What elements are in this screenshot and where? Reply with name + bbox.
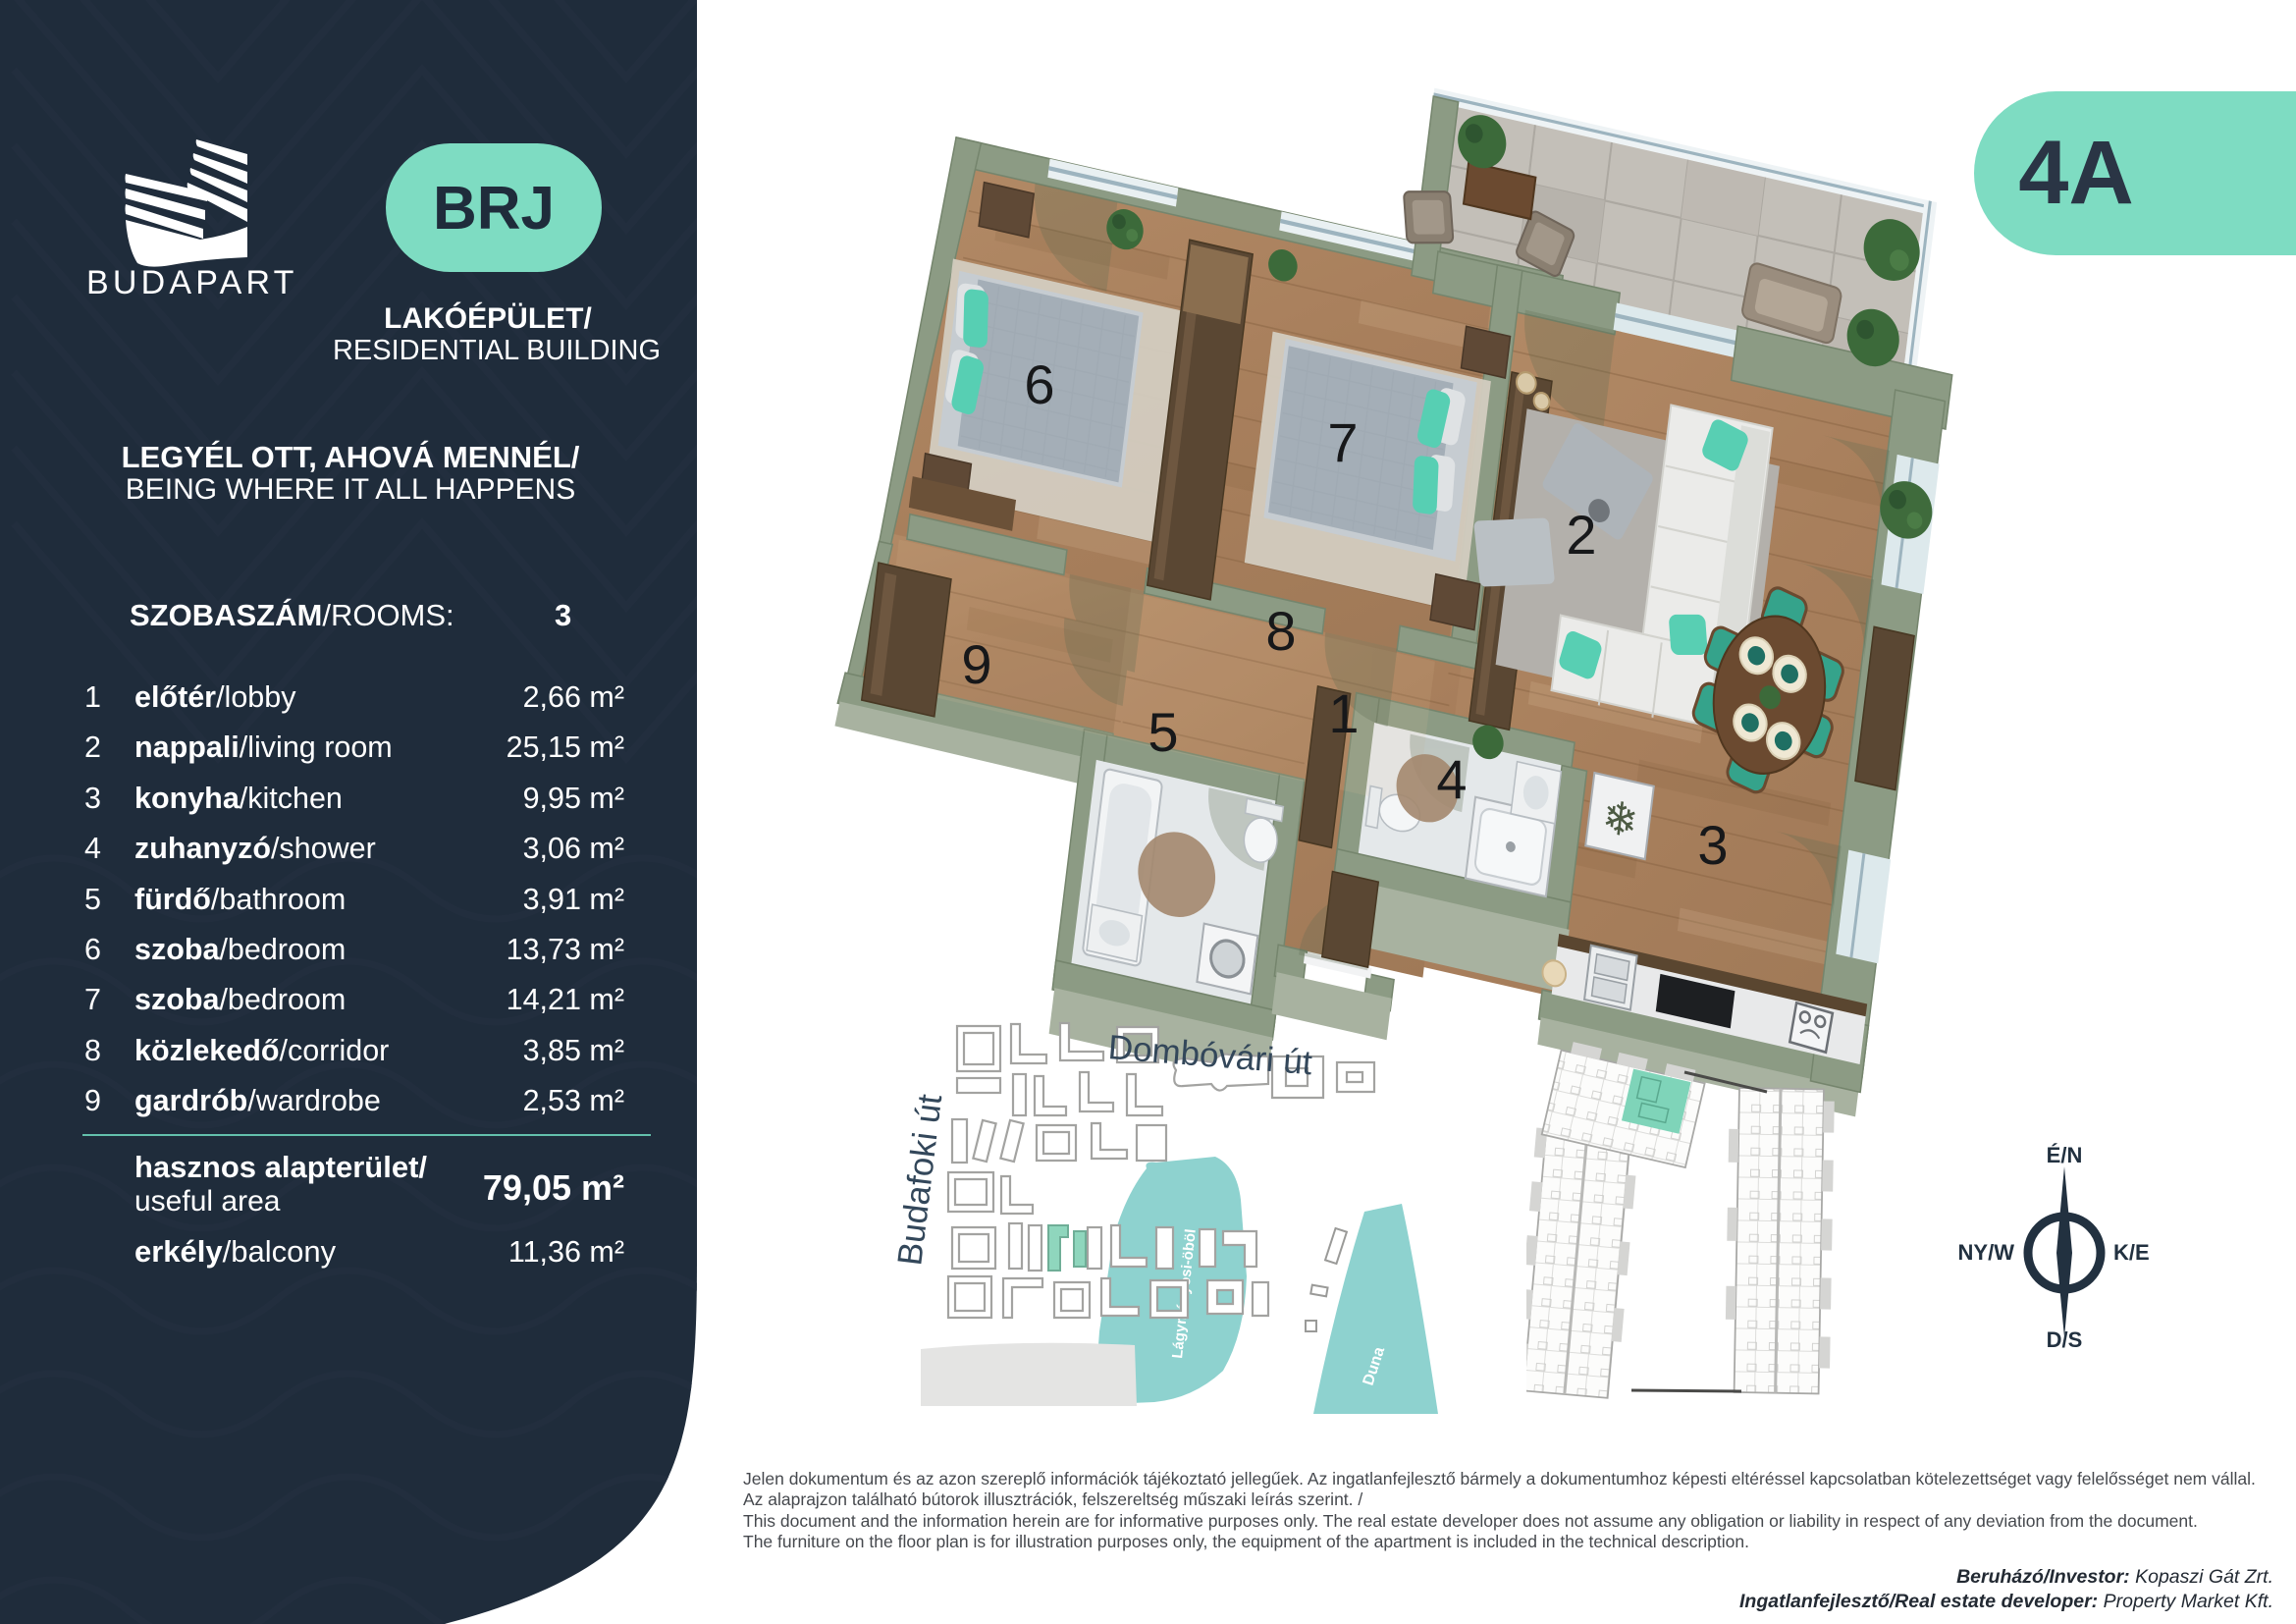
svg-text:NY/W: NY/W	[1958, 1240, 2015, 1265]
svg-text:8: 8	[84, 1034, 101, 1067]
svg-text:BUDAPART: BUDAPART	[86, 264, 298, 301]
svg-text:RESIDENTIAL BUILDING: RESIDENTIAL BUILDING	[333, 335, 661, 366]
svg-text:Budafoki út: Budafoki út	[890, 1092, 949, 1268]
svg-text:fürdő/bathroom: fürdő/bathroom	[134, 883, 346, 916]
svg-text:előtér/lobby: előtér/lobby	[134, 680, 296, 714]
svg-text:1: 1	[84, 680, 101, 714]
svg-text:5: 5	[1148, 701, 1178, 763]
svg-text:2: 2	[1566, 504, 1596, 566]
svg-text:szoba/bedroom: szoba/bedroom	[134, 983, 346, 1016]
svg-text:3: 3	[555, 598, 571, 632]
svg-text:3: 3	[1697, 814, 1728, 876]
svg-text:6: 6	[84, 933, 101, 966]
svg-text:9,95 m²: 9,95 m²	[523, 782, 624, 815]
svg-text:9: 9	[84, 1084, 101, 1117]
svg-text:LEGYÉL OTT, AHOVÁ MENNÉL/: LEGYÉL OTT, AHOVÁ MENNÉL/	[122, 440, 580, 474]
svg-text:4: 4	[1436, 748, 1467, 810]
svg-text:25,15 m²: 25,15 m²	[507, 731, 624, 764]
svg-text:3: 3	[84, 782, 101, 815]
svg-text:Dombóvári út: Dombóvári út	[1107, 1028, 1314, 1082]
svg-text:nappali/living room: nappali/living room	[134, 731, 393, 764]
svg-text:K/E: K/E	[2113, 1240, 2150, 1265]
svg-text:1: 1	[1328, 682, 1359, 744]
svg-text:BRJ: BRJ	[433, 175, 555, 243]
svg-text:13,73 m²: 13,73 m²	[507, 933, 624, 966]
svg-text:É/N: É/N	[2047, 1143, 2083, 1167]
svg-text:6: 6	[1024, 353, 1054, 415]
svg-text:2,66 m²: 2,66 m²	[523, 680, 624, 714]
svg-text:9: 9	[961, 633, 991, 695]
svg-text:79,05 m²: 79,05 m²	[483, 1167, 624, 1208]
svg-text:7: 7	[84, 983, 101, 1016]
svg-text:14,21 m²: 14,21 m²	[507, 983, 624, 1016]
svg-text:szoba/bedroom: szoba/bedroom	[134, 933, 346, 966]
svg-text:D/S: D/S	[2047, 1327, 2083, 1352]
svg-text:3,91 m²: 3,91 m²	[523, 883, 624, 916]
svg-text:LAKÓÉPÜLET/: LAKÓÉPÜLET/	[384, 301, 592, 335]
svg-text:❄: ❄	[1599, 789, 1640, 848]
svg-text:3,85 m²: 3,85 m²	[523, 1034, 624, 1067]
svg-text:BEING WHERE IT ALL HAPPENS: BEING WHERE IT ALL HAPPENS	[126, 473, 575, 506]
svg-text:közlekedő/corridor: közlekedő/corridor	[134, 1034, 389, 1067]
svg-text:8: 8	[1265, 600, 1296, 662]
svg-text:gardrób/wardrobe: gardrób/wardrobe	[134, 1084, 381, 1117]
svg-text:zuhanyzó/shower: zuhanyzó/shower	[134, 832, 376, 865]
svg-text:erkély/balcony: erkély/balcony	[134, 1234, 337, 1269]
svg-text:2,53 m²: 2,53 m²	[523, 1084, 624, 1117]
svg-text:useful area: useful area	[134, 1185, 281, 1218]
svg-text:3,06 m²: 3,06 m²	[523, 832, 624, 865]
svg-text:2: 2	[84, 731, 101, 764]
svg-text:5: 5	[84, 883, 101, 916]
svg-text:hasznos alapterület/: hasznos alapterület/	[134, 1150, 427, 1184]
svg-text:7: 7	[1327, 411, 1358, 473]
svg-text:konyha/kitchen: konyha/kitchen	[134, 782, 343, 815]
svg-text:11,36 m²: 11,36 m²	[508, 1235, 624, 1269]
svg-text:SZOBASZÁM/ROOMS:: SZOBASZÁM/ROOMS:	[130, 598, 454, 632]
svg-text:4: 4	[84, 832, 101, 865]
